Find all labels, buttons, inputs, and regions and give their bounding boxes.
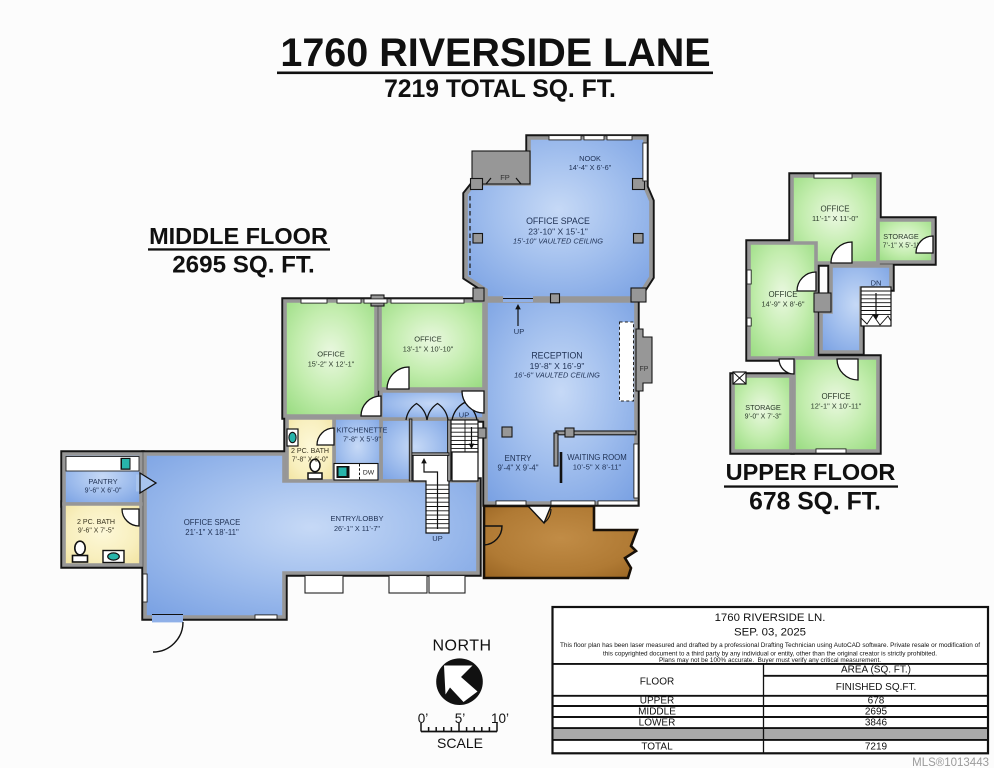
svg-text:2 PC. BATH: 2 PC. BATH — [77, 518, 115, 526]
svg-text:MIDDLE: MIDDLE — [638, 707, 676, 718]
svg-text:OFFICE: OFFICE — [769, 290, 798, 299]
svg-text:10’-5" X 8’-11": 10’-5" X 8’-11" — [573, 463, 622, 472]
svg-text:RECEPTION: RECEPTION — [531, 351, 582, 361]
svg-text:SCALE: SCALE — [437, 735, 483, 751]
svg-text:14’-4" X 6’-6": 14’-4" X 6’-6" — [569, 163, 612, 172]
svg-text:26’-1" X 11’-7": 26’-1" X 11’-7" — [334, 524, 380, 533]
svg-text:FINISHED SQ.FT.: FINISHED SQ.FT. — [836, 682, 917, 693]
svg-text:7219 TOTAL SQ. FT.: 7219 TOTAL SQ. FT. — [384, 76, 616, 103]
svg-text:1760 RIVERSIDE LN.: 1760 RIVERSIDE LN. — [715, 612, 826, 624]
svg-text:9’-6" X 7’-5": 9’-6" X 7’-5" — [78, 528, 115, 535]
svg-text:UP: UP — [432, 534, 442, 543]
svg-text:12’-1" X 10’-11": 12’-1" X 10’-11" — [811, 402, 862, 411]
svg-text:UPPER FLOOR: UPPER FLOOR — [726, 459, 896, 485]
svg-text:11’-1" X 11’-0": 11’-1" X 11’-0" — [812, 214, 858, 223]
svg-text:MIDDLE FLOOR: MIDDLE FLOOR — [149, 223, 328, 249]
svg-text:SEP. 03, 2025: SEP. 03, 2025 — [734, 627, 806, 639]
svg-text:UP: UP — [514, 327, 524, 336]
svg-text:NOOK: NOOK — [579, 154, 601, 163]
svg-text:21’-1" X 18’-11": 21’-1" X 18’-11" — [185, 528, 239, 537]
svg-text:OFFICE: OFFICE — [821, 205, 850, 214]
svg-text:ENTRY: ENTRY — [505, 454, 533, 463]
svg-text:DW: DW — [363, 470, 375, 477]
svg-text:1760 RIVERSIDE LANE: 1760 RIVERSIDE LANE — [280, 31, 710, 75]
svg-text:OFFICE SPACE: OFFICE SPACE — [184, 518, 241, 527]
svg-text:9’-4" X 9’-4": 9’-4" X 9’-4" — [497, 464, 538, 473]
svg-text:678 SQ. FT.: 678 SQ. FT. — [749, 489, 881, 516]
svg-text:UP: UP — [459, 411, 469, 420]
svg-text:UPPER: UPPER — [640, 696, 674, 707]
svg-text:OFFICE: OFFICE — [822, 392, 851, 401]
svg-text:10’: 10’ — [491, 711, 509, 726]
svg-text:FP: FP — [640, 366, 649, 373]
svg-text:KITCHENETTE: KITCHENETTE — [337, 426, 388, 435]
svg-text:AREA (SQ. FT.): AREA (SQ. FT.) — [841, 665, 911, 676]
svg-text:0’: 0’ — [418, 711, 429, 726]
svg-text:7219: 7219 — [865, 742, 888, 753]
svg-text:LOWER: LOWER — [639, 718, 676, 729]
svg-text:NORTH: NORTH — [432, 638, 491, 655]
svg-text:2695: 2695 — [865, 707, 888, 718]
svg-text:This floor plan has been laser: This floor plan has been laser measured … — [560, 642, 980, 649]
svg-text:9’-0" X 7’-3": 9’-0" X 7’-3" — [745, 414, 782, 421]
svg-text:23’-10" X 15’-1": 23’-10" X 15’-1" — [528, 227, 588, 237]
svg-text:FP: FP — [500, 173, 510, 182]
svg-text:OFFICE SPACE: OFFICE SPACE — [526, 216, 590, 226]
svg-text:OFFICE: OFFICE — [317, 350, 345, 359]
svg-text:7’-1" X 5’-1": 7’-1" X 5’-1" — [883, 243, 920, 250]
svg-text:9’-6" X 6’-0": 9’-6" X 6’-0" — [85, 488, 122, 495]
svg-text:TOTAL: TOTAL — [641, 742, 673, 753]
svg-text:2 PC. BATH: 2 PC. BATH — [291, 447, 329, 455]
svg-text:FLOOR: FLOOR — [640, 677, 674, 688]
svg-text:15’-2" X 12’-1": 15’-2" X 12’-1" — [308, 360, 355, 369]
svg-text:3846: 3846 — [865, 718, 888, 729]
svg-text:ENTRY/LOBBY: ENTRY/LOBBY — [330, 514, 383, 523]
svg-text:2695 SQ. FT.: 2695 SQ. FT. — [172, 252, 315, 279]
svg-text:STORAGE: STORAGE — [883, 232, 919, 241]
svg-text:DN: DN — [871, 279, 882, 288]
svg-text:MLS®1013443: MLS®1013443 — [912, 757, 989, 768]
svg-text:PANTRY: PANTRY — [88, 477, 117, 486]
svg-text:13’-1" X 10’-10": 13’-1" X 10’-10" — [403, 345, 454, 354]
svg-text:STORAGE: STORAGE — [745, 403, 781, 412]
svg-text:WAITING ROOM: WAITING ROOM — [567, 453, 626, 462]
svg-text:OFFICE: OFFICE — [414, 335, 442, 344]
svg-text:16’-6" VAULTED CEILING: 16’-6" VAULTED CEILING — [514, 371, 600, 380]
svg-text:7’-8" X 6’-0": 7’-8" X 6’-0" — [292, 457, 329, 464]
svg-text:14’-9" X 8’-6": 14’-9" X 8’-6" — [761, 300, 804, 309]
svg-text:678: 678 — [868, 696, 885, 707]
svg-text:7’-8" X 5’-9": 7’-8" X 5’-9" — [343, 435, 381, 444]
svg-text:15’-10" VAULTED CEILING: 15’-10" VAULTED CEILING — [513, 237, 603, 246]
svg-text:5’: 5’ — [455, 711, 466, 726]
svg-text:Plans may not be 100% accurate: Plans may not be 100% accurate. Buyer mu… — [659, 657, 881, 664]
svg-text:19’-8" X 16’-9": 19’-8" X 16’-9" — [530, 361, 585, 371]
